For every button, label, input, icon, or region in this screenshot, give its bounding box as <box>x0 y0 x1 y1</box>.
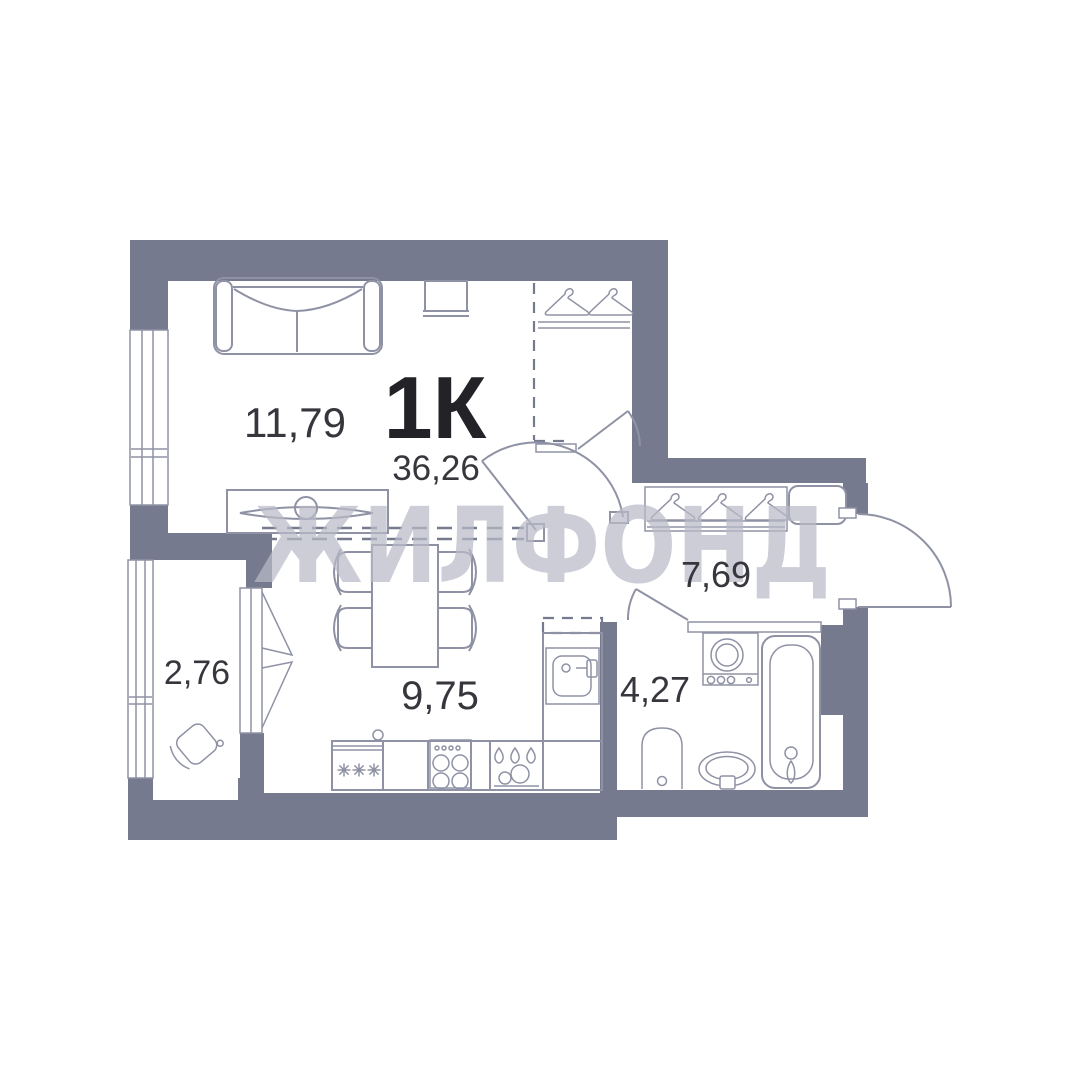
thin-wall-bathroom <box>688 622 821 632</box>
kitchen-area-label: 9,75 <box>401 674 479 718</box>
bathroom-area-label: 4,27 <box>620 669 690 710</box>
hanger-icon <box>545 289 588 315</box>
washing-machine-icon <box>703 633 758 685</box>
toilet-icon <box>642 728 682 789</box>
living-room-window-icon <box>130 330 168 505</box>
bathroom-sink-icon <box>699 752 755 789</box>
wardrobe-door-arc <box>578 411 640 449</box>
hanger-icon <box>589 289 632 315</box>
wall-segment <box>632 458 866 483</box>
chair-icon <box>334 605 372 651</box>
wardrobe-partition-dashed <box>534 283 566 441</box>
wall-segment <box>130 240 668 281</box>
wall-segment <box>240 733 264 793</box>
floor-plan-svg: ЖИЛФОНД 11,79 1К 36,26 9,75 7,69 4,27 2,… <box>0 0 1080 1080</box>
wall-segment <box>632 281 668 483</box>
wall-segment <box>130 533 258 560</box>
chair-icon <box>438 605 476 651</box>
kitchen-prep-counter-icon <box>494 748 539 786</box>
entrance-door-arc <box>839 508 951 609</box>
bathtub-icon <box>762 636 820 788</box>
balcony-door-window-icon <box>240 588 292 733</box>
wall-segment <box>130 240 168 330</box>
wall-segment <box>843 607 868 817</box>
kitchen-sink-icon <box>546 648 599 704</box>
wall-segment <box>821 625 843 715</box>
stove-icon <box>430 740 471 789</box>
living-room-area-label: 11,79 <box>244 399 346 446</box>
fridge-icon <box>332 730 383 777</box>
wall-segment <box>240 793 617 840</box>
wardrobe-rod-icon <box>538 322 630 328</box>
apartment-type-label: 1К <box>384 358 487 457</box>
balcony-window-icon <box>128 560 153 778</box>
hallway-area-label: 7,69 <box>681 554 751 595</box>
sofa-icon <box>214 278 382 354</box>
nightstand-icon <box>423 281 469 316</box>
floor-plan-page: ЖИЛФОНД 11,79 1К 36,26 9,75 7,69 4,27 2,… <box>0 0 1080 1080</box>
kitchen-vent-box <box>543 618 602 633</box>
wall-segment <box>610 790 868 817</box>
balcony-area-label: 2,76 <box>164 654 230 692</box>
total-area-label: 36,26 <box>392 449 480 488</box>
